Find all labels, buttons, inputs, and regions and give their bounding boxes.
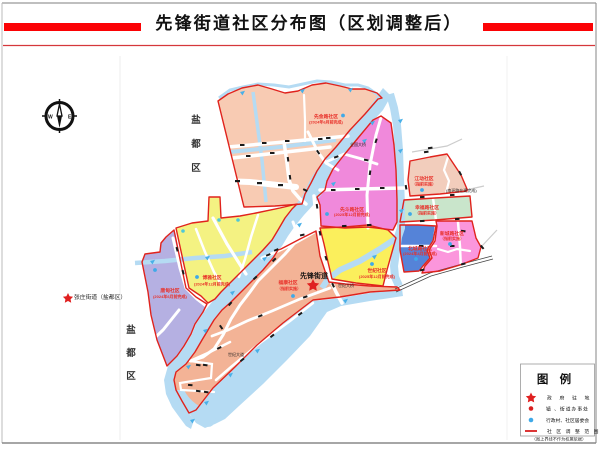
svg-text:盐: 盐 [191, 114, 201, 126]
svg-text:图 例: 图 例 [537, 372, 575, 386]
svg-text:（指前实施）: （指前实施） [277, 285, 301, 291]
svg-text:(2024年6月前完成): (2024年6月前完成) [309, 119, 343, 125]
svg-text:社 区 调 整 范 围: 社 区 调 整 范 围 [547, 428, 600, 435]
svg-text:行政村、社区居委会: 行政村、社区居委会 [546, 417, 589, 424]
svg-text:政 府 驻 地: 政 府 驻 地 [547, 395, 593, 402]
svg-text:都: 都 [125, 347, 136, 359]
svg-text:先锋街道社区分布图（区划调整后）: 先锋街道社区分布图（区划调整后） [155, 13, 462, 33]
svg-text:（指前实施）: （指前实施） [415, 210, 439, 216]
svg-text:（图上界线不作为权属依据）: （图上界线不作为权属依据） [532, 436, 586, 443]
svg-text:(2025年12月前完成): (2025年12月前完成) [359, 273, 396, 279]
svg-text:(2025年12月前完成): (2025年12月前完成) [334, 211, 371, 217]
svg-text:盐: 盐 [126, 324, 136, 336]
svg-text:全国大桥: 全国大桥 [350, 141, 366, 147]
svg-text:唐甸社区: 唐甸社区 [160, 287, 179, 294]
svg-text:(2024年6月前完成): (2024年6月前完成) [153, 293, 187, 299]
svg-text:世纪社区: 世纪社区 [367, 267, 386, 274]
svg-text:张庄街道（盐都区）: 张庄街道（盐都区） [74, 293, 126, 301]
svg-text:博雅社区: 博雅社区 [202, 274, 221, 281]
svg-text:世纪大道: 世纪大道 [228, 351, 244, 357]
svg-text:世纪大桥: 世纪大桥 [338, 282, 354, 288]
svg-text:(南环路在建完成): (南环路在建完成) [446, 187, 477, 193]
svg-text:福康社区: 福康社区 [277, 279, 297, 286]
svg-text:先锋街道: 先锋街道 [300, 271, 328, 280]
svg-text:(2024年12月前完成): (2024年12月前完成) [194, 281, 231, 287]
svg-text:（指前实施）: （指前实施） [440, 235, 464, 241]
svg-text:(2024年4月前完成): (2024年4月前完成) [403, 250, 437, 256]
svg-text:都: 都 [190, 138, 201, 150]
svg-text:镇 、街道办事处: 镇 、街道办事处 [546, 406, 589, 413]
svg-text:（指前实施）: （指前实施） [412, 181, 436, 187]
svg-text:W: W [48, 115, 53, 121]
svg-text:区: 区 [126, 371, 136, 382]
svg-text:区: 区 [191, 163, 201, 174]
